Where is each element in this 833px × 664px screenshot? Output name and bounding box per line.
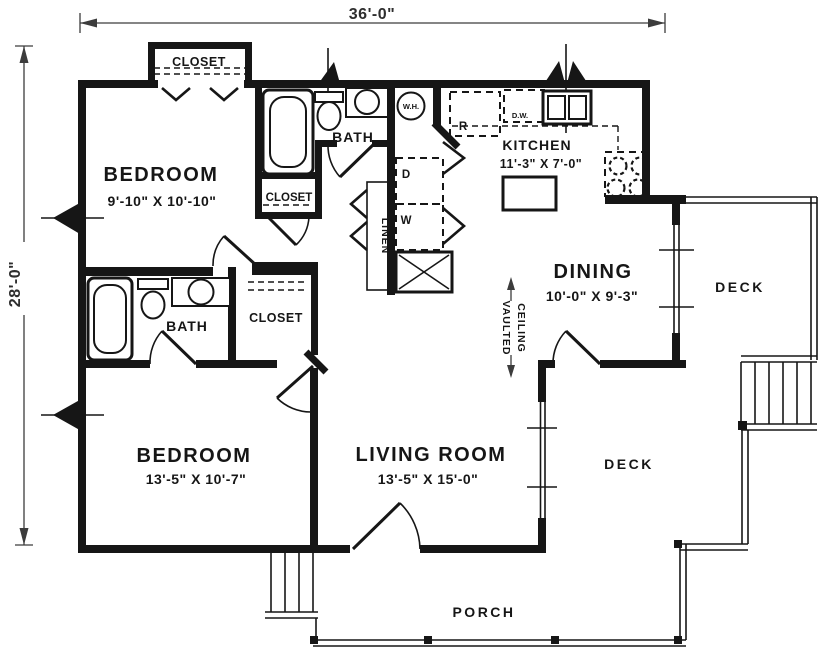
toilet bbox=[318, 102, 341, 130]
closet-entry-label: CLOSET bbox=[172, 55, 226, 69]
deck-upper-label: DECK bbox=[715, 279, 765, 295]
bedroom-top-door bbox=[213, 236, 257, 266]
dining-deck-door bbox=[553, 331, 600, 364]
bedroom-top-size: 9'-10" X 10'-10" bbox=[108, 193, 217, 209]
arrow-left-icon bbox=[80, 19, 97, 28]
bath-bottom-fixtures bbox=[88, 278, 230, 360]
rail-post bbox=[674, 636, 682, 644]
entry-closet bbox=[148, 42, 252, 100]
floor-plan-canvas: 36'-0" 28'-0" bbox=[0, 0, 833, 664]
rail-post bbox=[551, 636, 559, 644]
refrigerator-box bbox=[450, 92, 500, 136]
sink-basin bbox=[189, 280, 214, 305]
rail-post bbox=[424, 636, 432, 644]
porch-steps bbox=[265, 553, 318, 640]
washer-label: W bbox=[401, 215, 412, 227]
toilet-tank bbox=[138, 279, 168, 289]
arrow-up-icon bbox=[507, 277, 515, 290]
kitchen-size: 11'-3" X 7'-0" bbox=[500, 157, 582, 171]
bedroom-bottom-door bbox=[277, 366, 313, 412]
arrow-up-icon bbox=[20, 46, 29, 63]
bath-top-door bbox=[328, 144, 374, 177]
vaulted-ceiling-annotation: VAULTED CEILING bbox=[500, 277, 527, 378]
kitchen-island bbox=[503, 177, 556, 210]
bedroom-bottom-size: 13'-5" X 10'-7" bbox=[146, 471, 247, 487]
dryer-label: D bbox=[402, 169, 410, 181]
toilet bbox=[142, 292, 165, 319]
closet-door-chevron-icon bbox=[210, 88, 238, 100]
bifold-door-icon bbox=[443, 208, 464, 244]
front-door bbox=[353, 503, 420, 549]
refrigerator-label: R bbox=[459, 121, 468, 133]
burner-icon bbox=[610, 158, 627, 175]
closet-door-chevron-icon bbox=[162, 88, 190, 100]
overall-width-label: 36'-0" bbox=[349, 6, 395, 23]
sink-basin bbox=[355, 90, 379, 114]
ceiling-label: CEILING bbox=[515, 303, 527, 353]
casement-window-icon bbox=[542, 61, 566, 87]
deck-lower-label: DECK bbox=[604, 456, 654, 472]
closet-bedroom-label: CLOSET bbox=[249, 311, 303, 325]
linen-label: LINEN bbox=[379, 218, 391, 255]
casement-window-icon bbox=[566, 61, 590, 87]
deck-stairs bbox=[741, 362, 817, 430]
utility-area bbox=[351, 93, 464, 293]
dining-size: 10'-0" X 9'-3" bbox=[546, 288, 638, 304]
bedroom-bottom-label: BEDROOM bbox=[137, 445, 252, 467]
arrow-down-icon bbox=[20, 528, 29, 545]
floor-plan-drawing: 36'-0" 28'-0" bbox=[0, 0, 833, 664]
top-dimension: 36'-0" bbox=[80, 6, 665, 33]
rail-post bbox=[738, 421, 747, 430]
left-dimension: 28'-0" bbox=[7, 46, 33, 545]
overall-height-label: 28'-0" bbox=[7, 261, 24, 307]
bath-top-label: BATH bbox=[332, 129, 374, 145]
toilet-tank bbox=[315, 92, 343, 102]
dishwasher-label: D.W. bbox=[512, 111, 528, 120]
burner-icon bbox=[608, 180, 625, 197]
vaulted-label: VAULTED bbox=[500, 300, 512, 355]
living-room-size: 13'-5" X 15'-0" bbox=[378, 471, 479, 487]
arrow-right-icon bbox=[648, 19, 665, 28]
accordion-door-icon bbox=[351, 190, 367, 218]
rail-post bbox=[674, 540, 682, 548]
living-room-label: LIVING ROOM bbox=[356, 444, 507, 466]
washer-box bbox=[396, 204, 443, 250]
arrow-down-icon bbox=[507, 365, 515, 378]
accordion-door-icon bbox=[351, 222, 367, 250]
bath-bottom-door bbox=[150, 331, 196, 364]
closet-hall-label: CLOSET bbox=[266, 192, 313, 204]
bath-bottom-label: BATH bbox=[166, 318, 208, 334]
water-heater-label: W.H. bbox=[403, 102, 419, 111]
dryer-box bbox=[396, 158, 443, 204]
hall-door bbox=[267, 216, 309, 245]
kitchen-label: KITCHEN bbox=[502, 137, 571, 153]
bedroom-top-label: BEDROOM bbox=[104, 164, 219, 186]
deck-lower-outline bbox=[680, 430, 748, 640]
dining-label: DINING bbox=[554, 261, 633, 283]
porch-label: PORCH bbox=[452, 604, 515, 620]
